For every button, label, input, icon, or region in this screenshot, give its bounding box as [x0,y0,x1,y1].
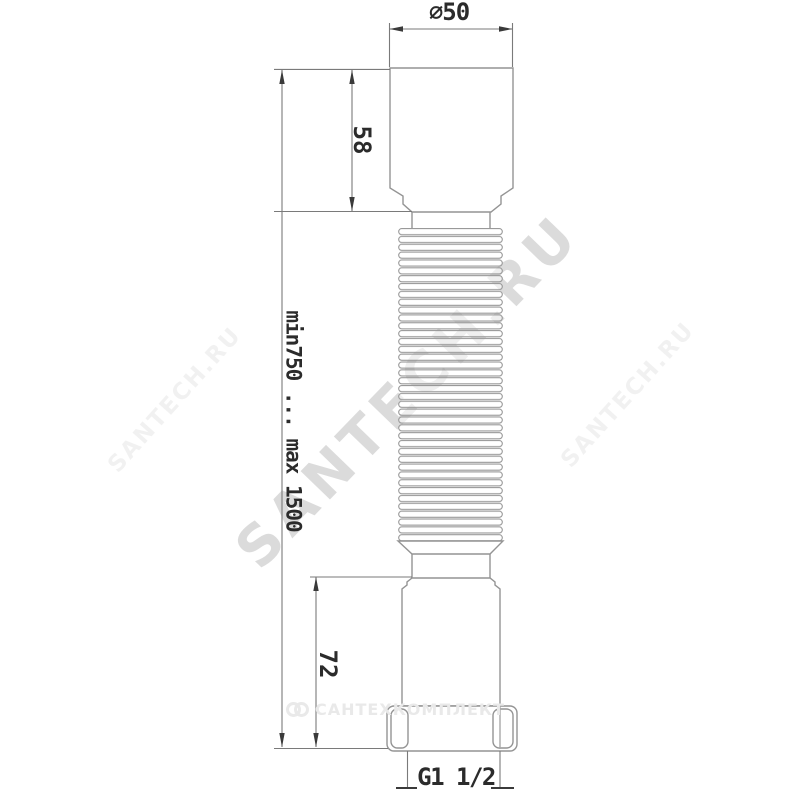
label-top-diameter: ⌀50 [429,0,469,24]
label-cuff-height: 58 [350,126,374,155]
arrow-length-bottom [279,733,284,747]
supplier-logo-icon [286,702,309,717]
tick-thread-left [396,787,417,789]
top-cuff [390,68,513,212]
arrow-length-top [279,70,284,84]
bottom-cone [398,541,503,554]
pipe-outline-group [387,68,517,751]
arrow-dia-left [390,26,404,31]
technical-drawing-flexible-drain-pipe: SANTECH.RU SANTECH.RU SANTECH.RU [0,0,800,800]
top-neck [412,212,490,228]
arrow-72-top [313,577,318,591]
label-length-range: min750 ... max 1500 [283,310,304,531]
bottom-neck [412,554,490,578]
drawing-canvas [0,0,800,800]
label-thread-size: G1 1/2 [417,765,495,789]
arrow-dia-right [499,26,513,31]
arrow-72-bottom [313,733,318,747]
arrow-58-bottom [349,197,354,211]
label-outlet-height: 72 [316,650,340,679]
watermark-supplier: САНТЕХКОМПЛЕКТ [286,700,505,719]
watermark-supplier-text: САНТЕХКОМПЛЕКТ [315,700,505,719]
outlet-body [402,578,500,706]
corrugated-hose [398,228,503,541]
arrow-58-top [349,70,354,84]
